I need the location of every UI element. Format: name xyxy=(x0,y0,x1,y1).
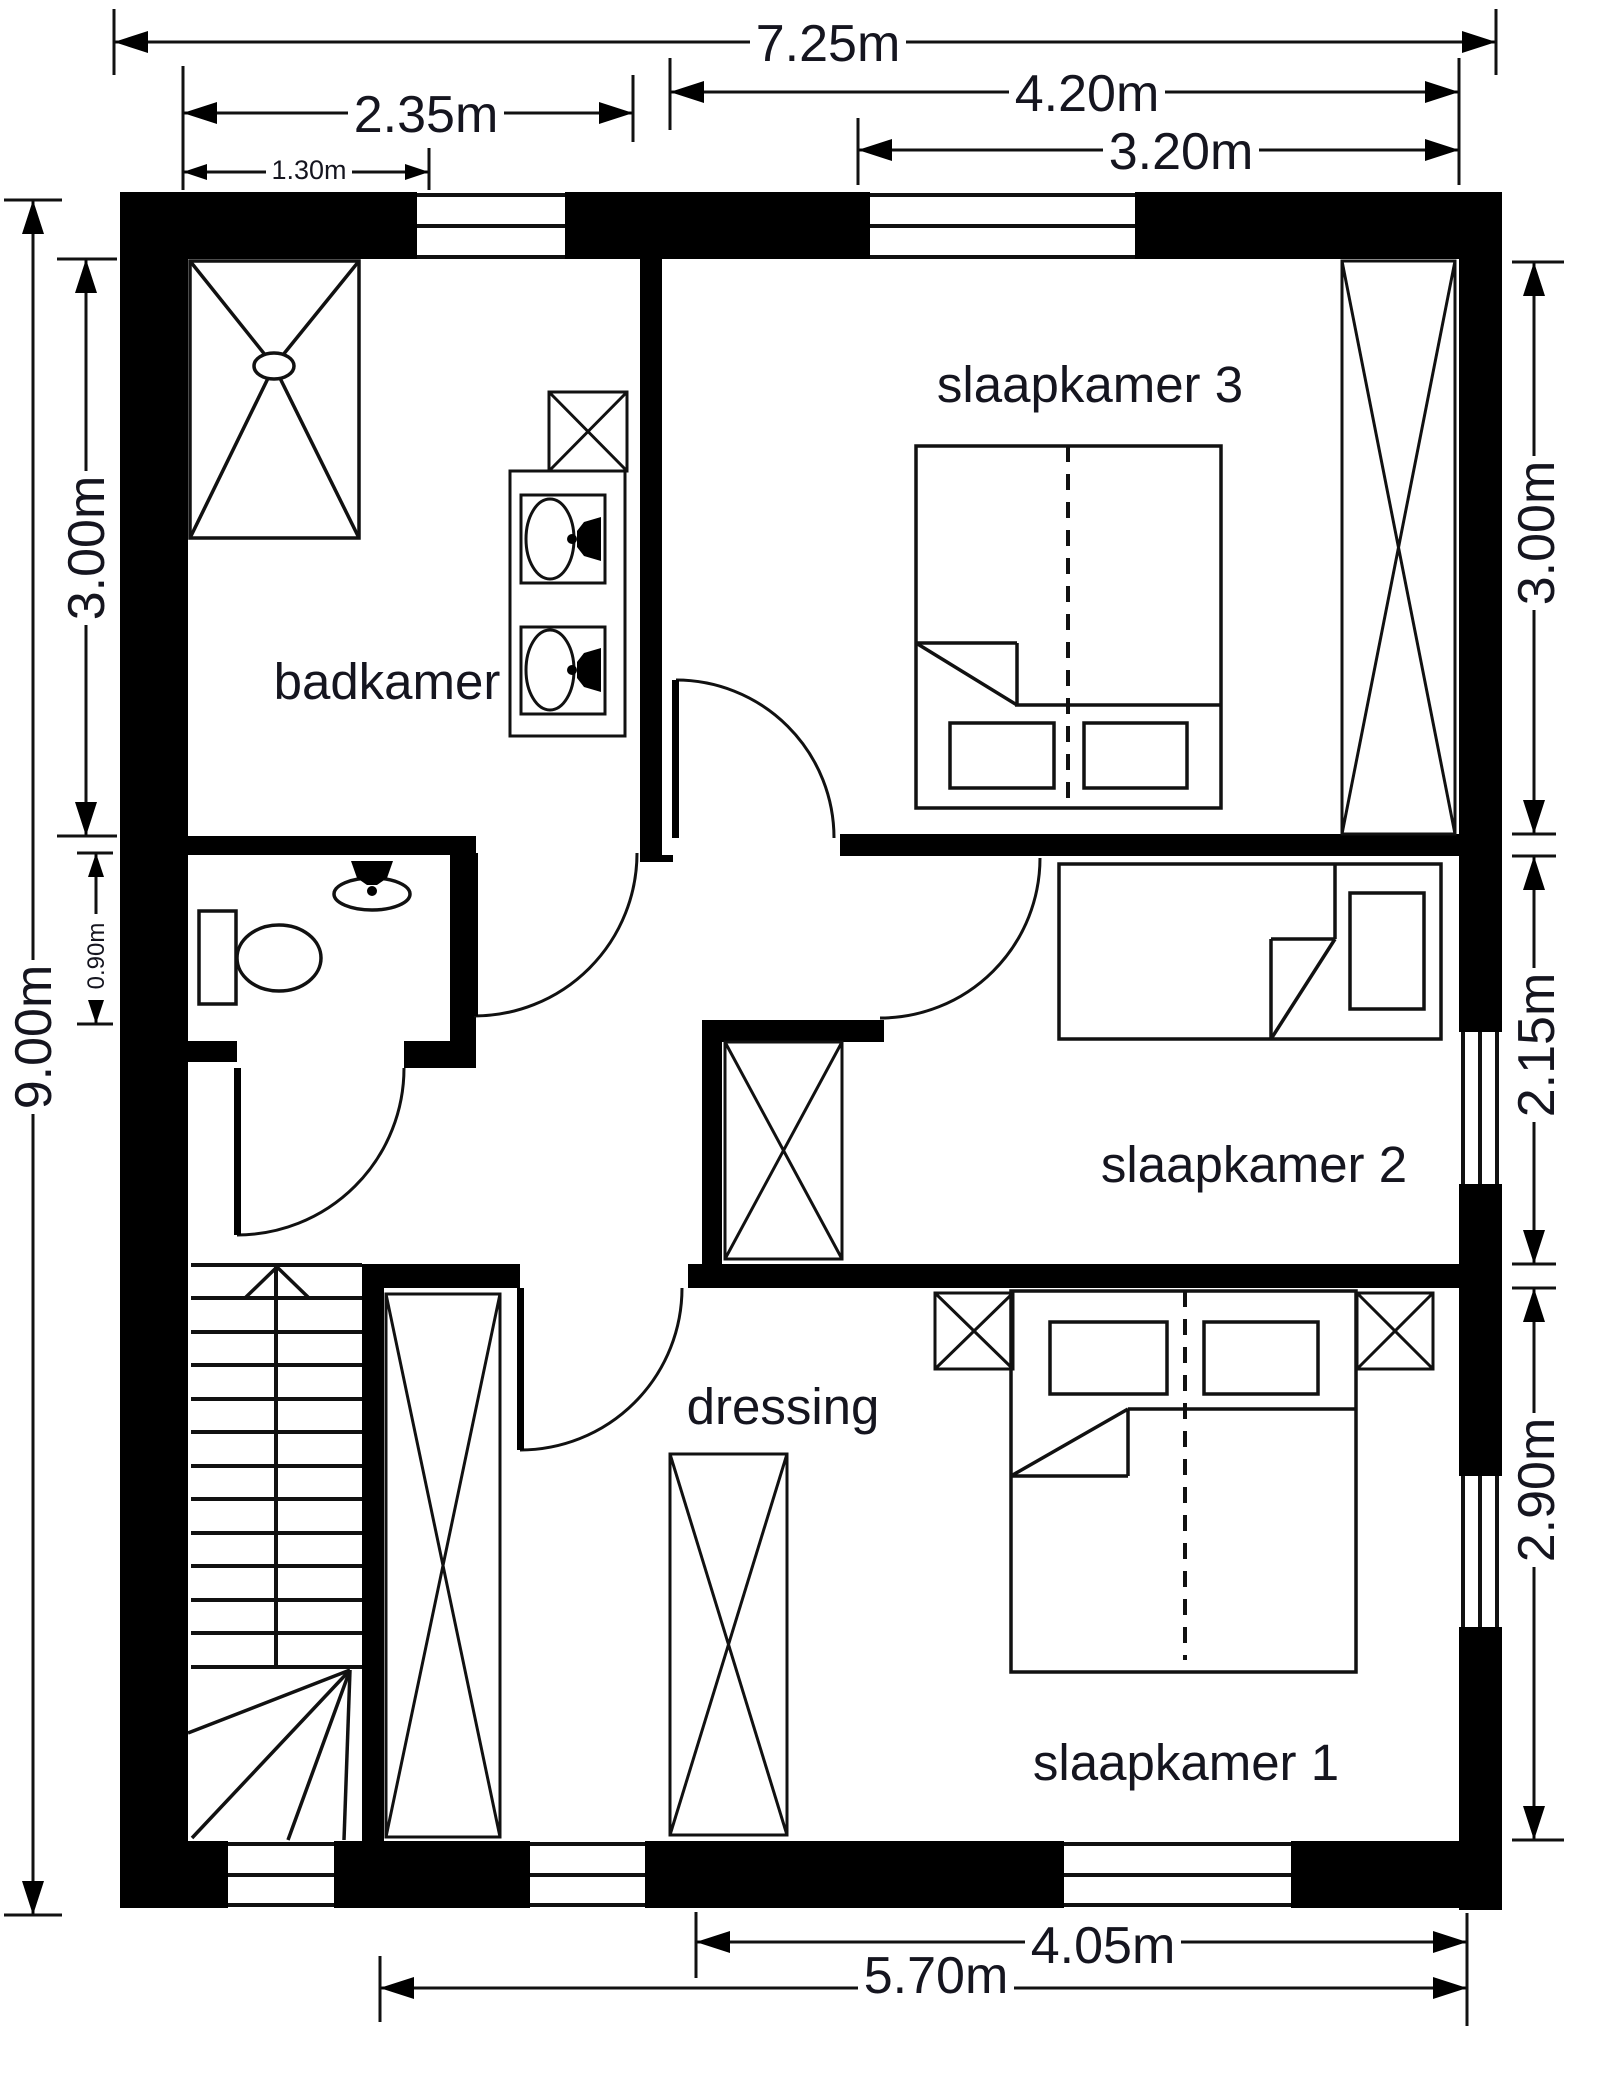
svg-text:3.00m: 3.00m xyxy=(58,476,116,621)
svg-text:dressing: dressing xyxy=(687,1378,880,1435)
svg-text:4.20m: 4.20m xyxy=(1015,65,1160,123)
svg-text:slaapkamer 2: slaapkamer 2 xyxy=(1101,1136,1407,1193)
svg-text:2.90m: 2.90m xyxy=(1508,1418,1566,1563)
svg-text:2.35m: 2.35m xyxy=(354,86,499,144)
svg-text:4.05m: 4.05m xyxy=(1031,1917,1176,1975)
svg-text:0.90m: 0.90m xyxy=(83,923,110,990)
svg-text:9.00m: 9.00m xyxy=(5,965,63,1110)
svg-text:1.30m: 1.30m xyxy=(271,155,346,185)
svg-text:slaapkamer 3: slaapkamer 3 xyxy=(937,356,1243,413)
svg-text:slaapkamer 1: slaapkamer 1 xyxy=(1033,1734,1339,1791)
svg-text:3.00m: 3.00m xyxy=(1508,461,1566,606)
svg-text:5.70m: 5.70m xyxy=(864,1947,1009,2005)
svg-text:7.25m: 7.25m xyxy=(756,15,901,73)
svg-text:badkamer: badkamer xyxy=(274,653,501,710)
svg-text:3.20m: 3.20m xyxy=(1109,123,1254,181)
svg-text:2.15m: 2.15m xyxy=(1508,973,1566,1118)
